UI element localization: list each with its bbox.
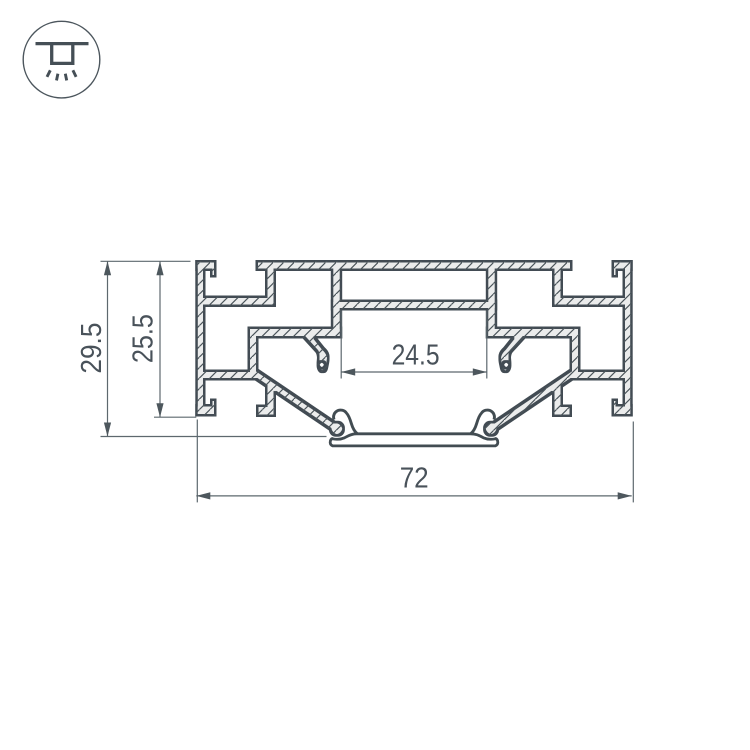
svg-text:72: 72 (400, 462, 429, 494)
svg-text:29.5: 29.5 (76, 323, 108, 374)
svg-text:25.5: 25.5 (128, 314, 160, 363)
svg-text:24.5: 24.5 (392, 340, 440, 372)
